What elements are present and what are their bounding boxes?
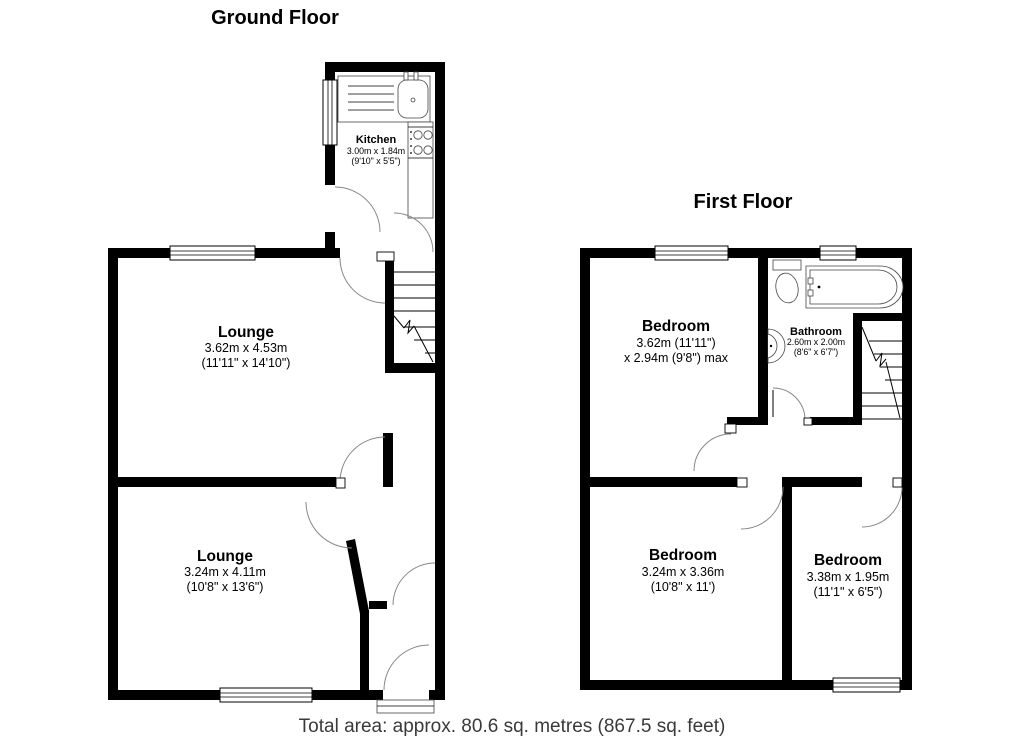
hob-knob <box>410 145 412 147</box>
wall <box>580 477 737 487</box>
hob-burner <box>424 146 432 154</box>
room-dim-metric: 3.38m x 1.95m <box>807 570 890 584</box>
bathtub <box>806 266 903 308</box>
window <box>655 246 728 260</box>
wall <box>580 248 590 690</box>
room-dim-metric: 3.00m x 1.84m <box>347 146 405 156</box>
wall <box>108 248 118 700</box>
first-floor-doors <box>694 388 902 529</box>
front-door-arc <box>384 645 429 690</box>
door-arc <box>335 187 380 232</box>
bedroom-right-label: Bedroom 3.38m x 1.95m (11'1" x 6'5") <box>807 552 890 599</box>
sink-tap <box>414 72 418 80</box>
ground-floor-stairs <box>394 272 435 362</box>
room-dim-imperial: (11'11" x 14'10") <box>202 356 291 370</box>
wall <box>312 690 383 700</box>
kitchen-hob-counter <box>408 122 433 218</box>
wall <box>325 72 335 80</box>
bedroom-left-label: Bedroom 3.24m x 3.36m (10'8" x 11') <box>642 547 725 594</box>
door-arc <box>393 563 435 605</box>
door-arc <box>694 434 731 471</box>
sink-drain <box>411 98 415 102</box>
room-dim-imperial: (10'8" x 13'6") <box>187 580 264 594</box>
wall <box>853 313 902 321</box>
toilet-cistern <box>773 260 801 270</box>
stair-break-line <box>862 327 876 361</box>
wall <box>429 690 445 700</box>
door-arc <box>306 502 352 548</box>
first-floor-windows <box>655 246 900 692</box>
window <box>170 246 255 260</box>
room-dim-metric: 3.24m x 3.36m <box>642 565 725 579</box>
room-dim-metric: 3.62m x 4.53m <box>205 341 288 355</box>
door-arc <box>741 487 783 529</box>
stair-wall <box>853 313 862 425</box>
window <box>833 678 900 692</box>
kitchen-label: Kitchen 3.00m x 1.84m (9'10" x 5'5") <box>347 134 405 166</box>
wall <box>383 433 393 487</box>
room-name: Bedroom <box>642 318 710 335</box>
door-leaf <box>377 252 394 261</box>
wall <box>108 690 220 700</box>
wall <box>369 601 387 609</box>
hob-burner <box>414 131 422 139</box>
first-floor-stairs <box>862 327 902 419</box>
stair-break-line <box>394 316 404 328</box>
wall <box>325 62 445 72</box>
wall <box>325 145 335 185</box>
lounge-top-label: Lounge 3.62m x 4.53m (11'11" x 14'10") <box>202 324 291 370</box>
hob-burner <box>414 146 422 154</box>
sink-tap <box>404 72 408 80</box>
window <box>820 246 856 260</box>
bath-drain <box>818 286 821 289</box>
room-dim-metric: 3.62m (11'11") <box>636 336 715 350</box>
room-name: Kitchen <box>356 134 397 146</box>
door-arc <box>862 487 902 527</box>
stair-break-zigzag <box>876 353 886 366</box>
wall <box>782 477 862 487</box>
floorplan-canvas: Ground Floor First Floor <box>0 0 1024 744</box>
room-name: Bedroom <box>814 552 882 569</box>
ground-floor-windows <box>170 80 337 702</box>
first-floor-title: First Floor <box>694 191 793 213</box>
room-dim-metric: 3.24m x 4.11m <box>184 565 266 579</box>
door-arc <box>340 437 385 482</box>
ground-floor-title: Ground Floor <box>211 7 339 29</box>
total-area-caption: Total area: approx. 80.6 sq. metres (867… <box>299 716 726 737</box>
door-leaf <box>336 478 345 488</box>
hob-burner <box>424 131 432 139</box>
room-name: Bedroom <box>649 547 717 564</box>
wall <box>782 480 792 680</box>
door-leaf <box>804 418 812 425</box>
bath-tap <box>808 278 813 284</box>
wash-basin <box>768 329 785 363</box>
floorplan-page: Ground Floor First Floor <box>0 0 1024 744</box>
hob-knob <box>410 131 412 133</box>
wall <box>435 62 445 700</box>
wall <box>900 680 912 690</box>
door-arc <box>394 213 433 252</box>
door-leaf <box>725 424 736 433</box>
ground-floor-doors <box>306 187 435 690</box>
window <box>220 688 312 702</box>
wall <box>728 248 820 258</box>
window <box>323 80 337 145</box>
room-name: Lounge <box>218 324 274 341</box>
stair-break-line <box>414 326 433 362</box>
door-leaf <box>893 478 902 487</box>
door-arc <box>340 258 385 303</box>
room-name: Lounge <box>197 548 253 565</box>
stair-break-line <box>886 362 900 418</box>
wall <box>758 258 768 422</box>
room-dim-imperial: (8'6" x 6'7") <box>794 347 838 357</box>
kitchen-sink-unit <box>338 72 430 122</box>
room-dim-imperial: (9'10" x 5'5") <box>351 156 400 166</box>
first-floor-walls <box>580 248 912 690</box>
toilet <box>773 260 801 305</box>
basin-tap <box>770 345 772 347</box>
diagonal-wall <box>346 539 369 614</box>
wall <box>360 610 369 690</box>
bathroom-label: Bathroom 2.60m x 2.00m (8'6" x 6'7") <box>787 326 845 357</box>
door-leaf <box>737 478 747 487</box>
room-dim-metric: 2.60m x 2.00m <box>787 337 845 347</box>
door-arc <box>773 388 805 420</box>
bath-tap <box>808 290 813 296</box>
lounge-bottom-label: Lounge 3.24m x 4.11m (10'8" x 13'6") <box>184 548 266 594</box>
toilet-bowl <box>773 271 801 305</box>
room-dim-imperial: (10'8" x 11') <box>651 580 716 594</box>
wall <box>580 248 655 258</box>
hob-knob <box>410 138 412 140</box>
hob-knob <box>410 152 412 154</box>
wall <box>118 477 336 487</box>
wall <box>580 680 833 690</box>
bedroom-top-label: Bedroom 3.62m (11'11") x 2.94m (9'8") ma… <box>624 318 729 365</box>
room-dim-imperial: x 2.94m (9'8") max <box>624 351 729 365</box>
room-dim-imperial: (11'1" x 6'5") <box>813 585 882 599</box>
porch-step <box>377 700 434 713</box>
stair-wall <box>385 258 394 363</box>
wall <box>255 248 340 258</box>
wall <box>385 363 435 373</box>
wall <box>902 248 912 690</box>
